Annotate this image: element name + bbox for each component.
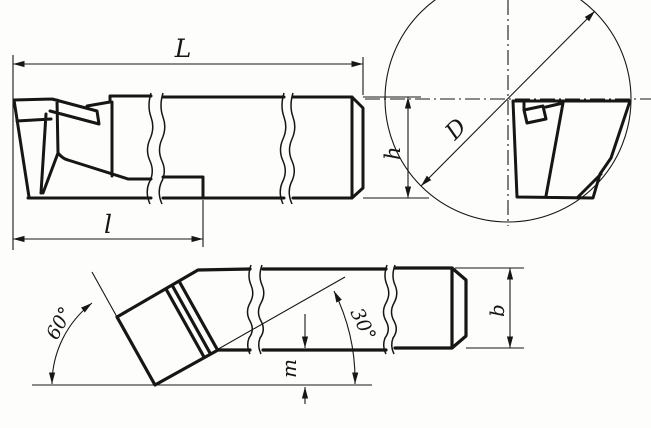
break-line [392,265,397,354]
plan-view-head-outline [117,269,250,385]
dim-label-L: L [174,34,192,63]
side-view-head-outline [14,96,151,198]
dim-label-60deg: 60° [42,303,77,343]
break-line [280,93,286,204]
break-line [159,93,165,204]
plan-view: 60° 30° m b [32,265,524,404]
break-line [248,265,253,354]
break-line [147,93,153,204]
end-view-cross-section [513,101,630,198]
break-line [384,265,389,354]
dim-label-m: m [277,359,301,378]
dim-label-b: b [485,304,509,317]
technical-drawing: L l h D [0,0,651,428]
plan-view-shank-end [395,268,466,348]
break-line [259,265,264,354]
drawing-canvas: L l h D [0,0,651,428]
break-line [289,93,295,204]
side-view-shank-mid [163,97,284,198]
side-view-shank-end [293,97,363,198]
dim-label-h: h [381,146,405,160]
angle-arc-30 [334,291,355,384]
dim-label-D: D [440,114,472,146]
side-view: L l h [13,34,429,250]
dim-label-l: l [104,210,112,239]
extension-line-60 [92,272,117,317]
extension-line-30 [155,277,345,385]
